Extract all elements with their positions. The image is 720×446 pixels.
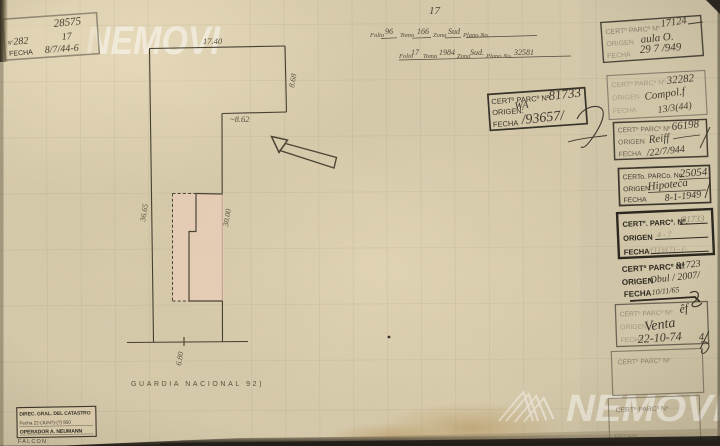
svg-text:4 - 7: 4 - 7 — [657, 230, 673, 240]
svg-text:FECHA: FECHA — [624, 247, 651, 257]
svg-text:17: 17 — [411, 48, 420, 57]
svg-text:Folio: Folio — [369, 32, 385, 39]
svg-text:ORIGEN: ORIGEN — [623, 185, 650, 193]
svg-text:/81733: /81733 — [678, 213, 705, 224]
svg-text:~8.62: ~8.62 — [230, 114, 250, 124]
svg-text:ORIGEN: ORIGEN — [620, 324, 647, 332]
svg-text:ORIGEN: ORIGEN — [618, 139, 645, 147]
svg-text:17: 17 — [429, 5, 441, 17]
svg-text:FECHA: FECHA — [613, 107, 637, 115]
svg-text:Sud: Sud — [448, 27, 461, 36]
svg-text:ORIGEN: ORIGEN — [623, 233, 653, 243]
svg-text:/(11)/(?) - (-: /(11)/(?) - (- — [647, 244, 687, 255]
svg-text:Reiff: Reiff — [647, 132, 672, 146]
svg-text:DIREC. GRAL. DEL CATASTRO: DIREC. GRAL. DEL CATASTRO — [19, 410, 90, 417]
svg-text:17.40: 17.40 — [203, 36, 223, 46]
svg-text:WA: WA — [514, 100, 530, 112]
svg-text:32581: 32581 — [513, 48, 534, 57]
svg-text:1984: 1984 — [439, 48, 455, 57]
svg-text:282: 282 — [13, 36, 29, 48]
svg-text:FECHA: FECHA — [618, 151, 642, 159]
svg-text:FALCON: FALCON — [18, 439, 47, 445]
svg-text:Plano No.: Plano No. — [485, 53, 513, 60]
svg-text:96: 96 — [385, 27, 393, 36]
svg-text:166: 166 — [417, 27, 429, 36]
svg-text:Plano No.: Plano No. — [462, 32, 490, 39]
svg-text:FECHA: FECHA — [493, 118, 519, 129]
svg-text:GUARDIA NACIONAL 92): GUARDIA NACIONAL 92) — [131, 381, 264, 388]
svg-text:FECHA: FECHA — [623, 197, 647, 205]
svg-text:ORIGEN: ORIGEN — [612, 94, 640, 102]
svg-text:Zona: Zona — [433, 32, 446, 39]
svg-text:NEMOVI: NEMOVI — [86, 19, 221, 63]
svg-text:Sud.: Sud. — [470, 48, 484, 57]
svg-text:FECHA: FECHA — [624, 289, 652, 299]
svg-text:Fecha 22-(JUN?)-(?) 950: Fecha 22-(JUN?)-(?) 950 — [19, 420, 71, 427]
